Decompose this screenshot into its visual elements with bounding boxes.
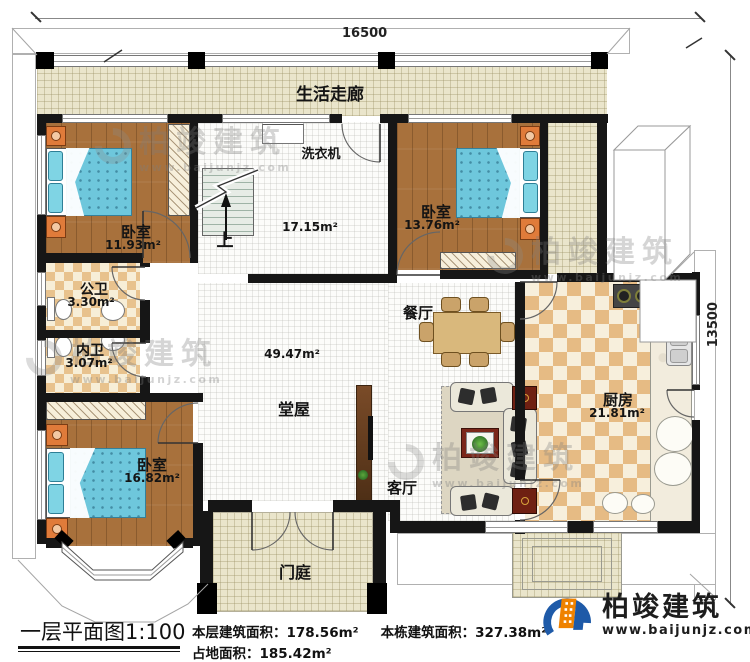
area-stats-row: 本层建筑面积：178.56m² 本栋建筑面积：327.38m² bbox=[192, 621, 547, 641]
plant bbox=[472, 436, 488, 452]
toilet bbox=[55, 336, 72, 357]
wall bbox=[37, 376, 46, 430]
kitchen-round-table bbox=[654, 452, 692, 486]
wardrobe bbox=[440, 252, 516, 269]
area-kitchen: 21.81m² bbox=[589, 406, 645, 420]
column bbox=[367, 583, 387, 614]
wall bbox=[208, 500, 252, 512]
column bbox=[188, 52, 205, 69]
dining-chair bbox=[469, 352, 489, 367]
label-corridor: 生活走廊 bbox=[296, 80, 364, 105]
entry-step-innermost bbox=[532, 546, 602, 582]
nightstand bbox=[520, 218, 540, 240]
wall bbox=[37, 253, 143, 263]
sink bbox=[666, 328, 692, 366]
dining-chair bbox=[419, 322, 434, 342]
nightstand bbox=[46, 424, 68, 446]
window bbox=[485, 521, 568, 533]
wall bbox=[140, 300, 150, 343]
brand-block: 柏竣建筑 www.baijunjz.com bbox=[542, 588, 750, 644]
pillow bbox=[48, 452, 64, 482]
window bbox=[37, 272, 46, 306]
window bbox=[692, 315, 700, 385]
area-bedroom1: 11.93m² bbox=[105, 238, 161, 252]
wall bbox=[390, 500, 400, 533]
window-band-corridor bbox=[37, 55, 608, 67]
wall bbox=[140, 377, 150, 393]
wall bbox=[373, 511, 386, 583]
window bbox=[408, 114, 512, 123]
wall bbox=[400, 521, 485, 533]
stat-land-area: 占地面积：185.42m² bbox=[192, 646, 332, 662]
window bbox=[222, 114, 330, 123]
area-bedroom3: 16.82m² bbox=[124, 471, 180, 485]
side-table bbox=[512, 488, 537, 514]
wall bbox=[597, 114, 607, 282]
wall bbox=[333, 500, 397, 512]
nightstand bbox=[520, 126, 540, 146]
wall bbox=[248, 274, 388, 283]
dimension-right-value: 13500 bbox=[706, 302, 721, 347]
wall bbox=[190, 114, 198, 263]
area-stats-row2: 占地面积：185.42m² bbox=[192, 642, 332, 662]
wall bbox=[37, 393, 203, 402]
wall bbox=[692, 420, 700, 533]
wall bbox=[140, 263, 150, 267]
toilet-tank bbox=[47, 297, 55, 321]
stat-floor-area: 本层建筑面积：178.56m² bbox=[192, 621, 359, 641]
area-stair-hall: 17.15m² bbox=[282, 220, 338, 234]
label-washer: 洗衣机 bbox=[301, 143, 340, 162]
dining-chair bbox=[469, 297, 489, 312]
pillow bbox=[48, 151, 63, 181]
kitchen-counter bbox=[650, 282, 692, 533]
dimension-tick bbox=[694, 11, 705, 22]
window bbox=[37, 340, 46, 376]
wall bbox=[37, 215, 46, 272]
kitchen-round-table bbox=[656, 416, 694, 452]
window bbox=[37, 430, 46, 520]
wall bbox=[540, 114, 548, 279]
dimension-line-top bbox=[35, 18, 701, 19]
wall bbox=[692, 385, 700, 390]
pillow bbox=[48, 484, 64, 514]
brand-name: 柏竣建筑 bbox=[602, 594, 750, 622]
plan-title: 一层平面图1:100 bbox=[20, 616, 186, 646]
nightstand bbox=[46, 126, 66, 146]
eave-band-left bbox=[12, 54, 36, 559]
dining-chair bbox=[441, 297, 461, 312]
wall bbox=[568, 521, 593, 533]
wardrobe bbox=[168, 124, 190, 216]
window bbox=[593, 521, 658, 533]
stat-building-area: 本栋建筑面积：327.38m² bbox=[381, 621, 548, 641]
wall bbox=[37, 114, 46, 135]
eave-band-top bbox=[12, 28, 630, 54]
window bbox=[37, 135, 46, 215]
column bbox=[378, 52, 395, 69]
label-stairs-up: 上 bbox=[217, 226, 234, 251]
dimension-top-value: 16500 bbox=[342, 26, 387, 41]
wall bbox=[557, 273, 700, 282]
wall bbox=[440, 270, 548, 279]
title-underline bbox=[18, 646, 180, 652]
dimension-tick bbox=[30, 11, 41, 22]
dimension-line-right bbox=[730, 56, 731, 605]
label-dining: 餐厅 bbox=[403, 302, 433, 323]
column bbox=[591, 52, 608, 69]
wall bbox=[515, 282, 525, 480]
wall bbox=[692, 272, 700, 315]
wall bbox=[512, 114, 608, 123]
label-porch: 门庭 bbox=[279, 559, 311, 583]
kitchen-stool bbox=[602, 492, 628, 514]
wall bbox=[330, 114, 342, 123]
kitchen-stool bbox=[631, 494, 655, 514]
brand-url: www.baijunjz.com bbox=[602, 623, 750, 638]
wall bbox=[658, 521, 700, 533]
floor-plan-canvas: 柏竣建筑 www.baijunjz.com 柏竣建筑 www.baijunjz.… bbox=[0, 0, 750, 662]
nightstand bbox=[46, 216, 66, 238]
label-living: 客厅 bbox=[387, 477, 417, 498]
column bbox=[36, 52, 54, 69]
wall bbox=[37, 330, 140, 338]
tv bbox=[368, 416, 373, 460]
brand-logo-icon bbox=[542, 588, 594, 644]
wall bbox=[388, 114, 397, 283]
label-hall: 堂屋 bbox=[278, 396, 310, 420]
stove bbox=[613, 284, 653, 308]
pillow bbox=[48, 183, 63, 213]
column bbox=[197, 583, 217, 614]
floor-corridor-wrap bbox=[548, 116, 597, 274]
wall bbox=[200, 511, 213, 583]
area-bath-public: 3.30m² bbox=[67, 295, 114, 309]
window bbox=[62, 114, 168, 123]
area-bath-private: 3.07m² bbox=[65, 356, 112, 370]
area-hall: 49.47m² bbox=[264, 347, 320, 361]
wall bbox=[37, 520, 46, 544]
area-bedroom2: 13.76m² bbox=[404, 218, 460, 232]
pillow bbox=[523, 183, 538, 213]
dining-chair bbox=[441, 352, 461, 367]
pillow bbox=[523, 151, 538, 181]
sofa bbox=[450, 486, 514, 516]
dining-table bbox=[433, 312, 501, 354]
washing-machine bbox=[262, 122, 304, 144]
dining-chair bbox=[500, 322, 515, 342]
plant bbox=[358, 470, 368, 480]
sofa bbox=[450, 382, 514, 412]
